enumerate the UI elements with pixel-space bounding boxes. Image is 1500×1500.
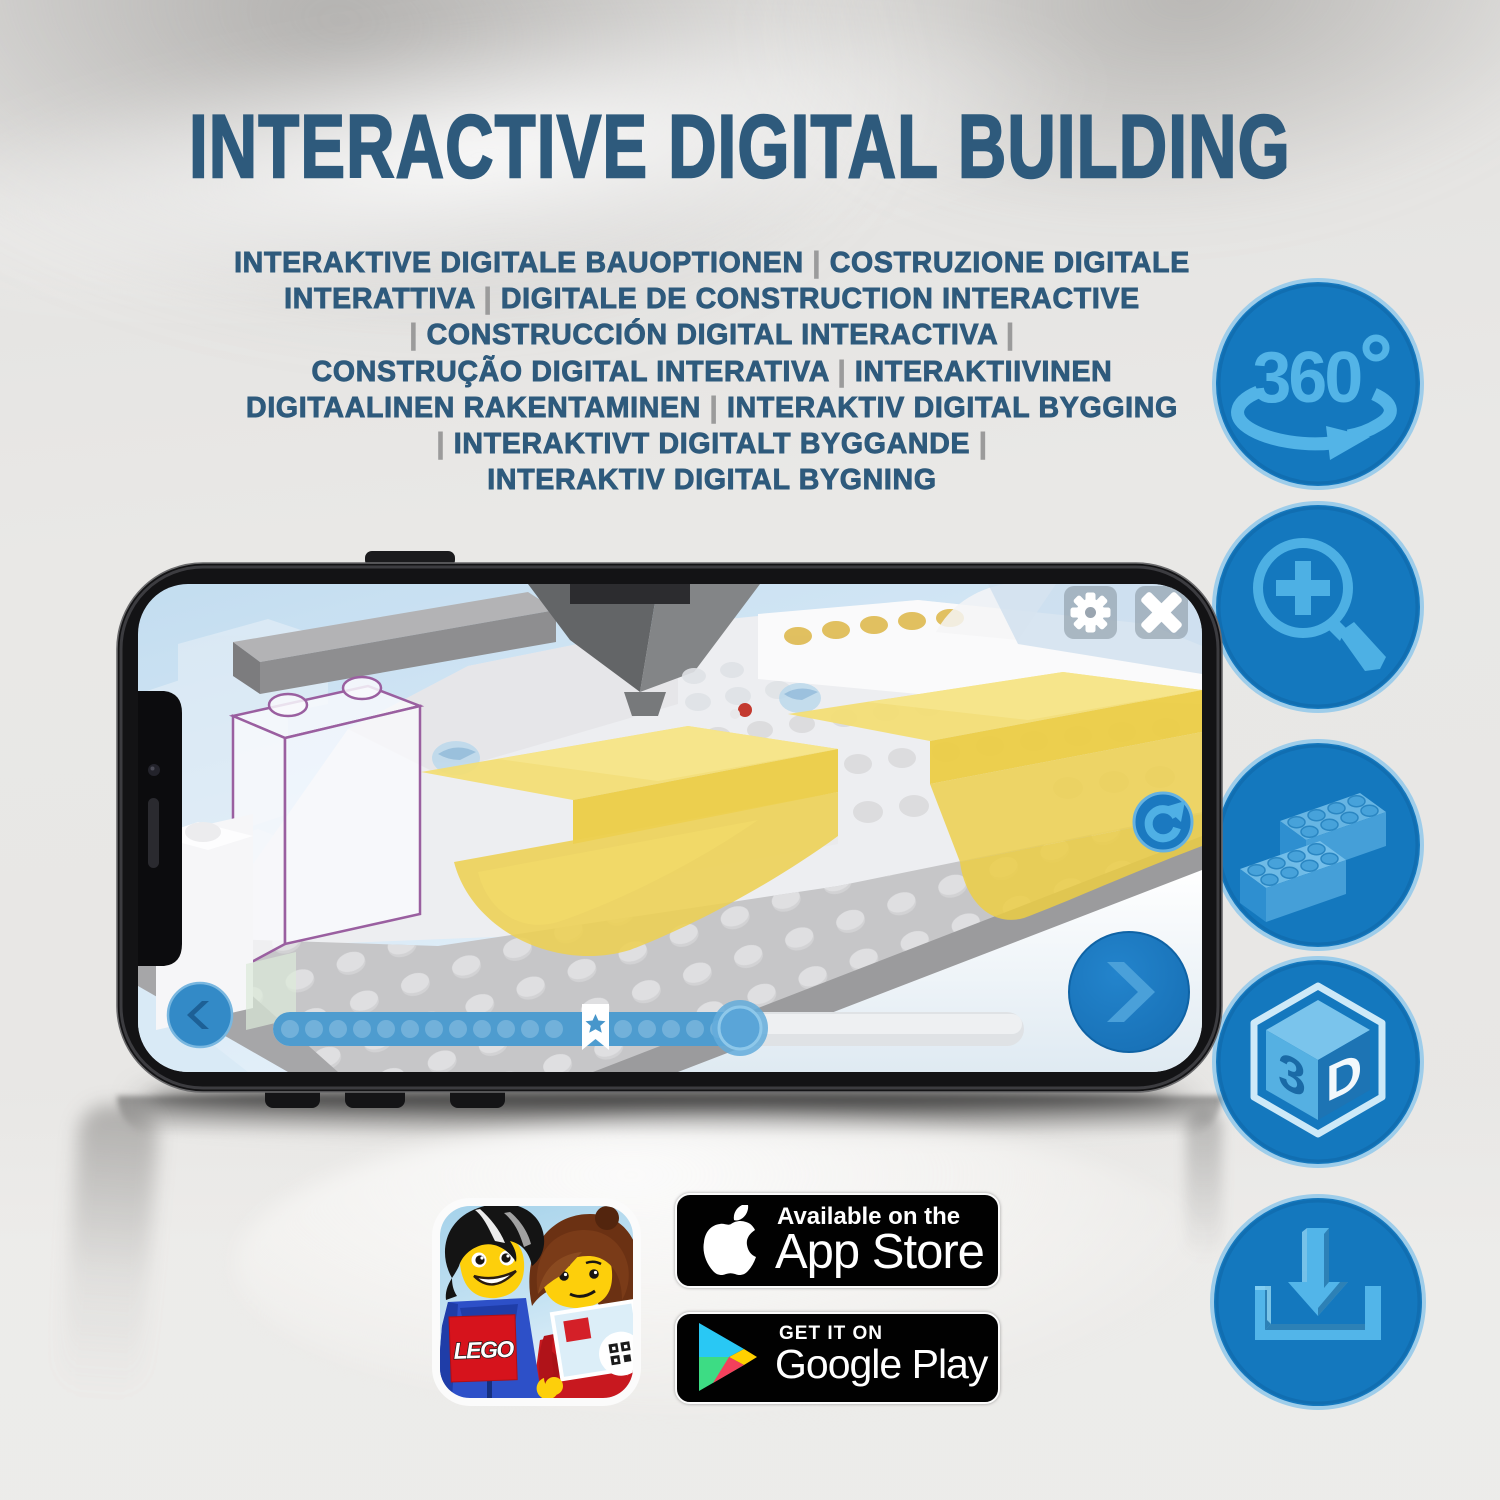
svg-text:360: 360 [1252, 338, 1360, 418]
svg-text:LEGO: LEGO [453, 1336, 515, 1364]
